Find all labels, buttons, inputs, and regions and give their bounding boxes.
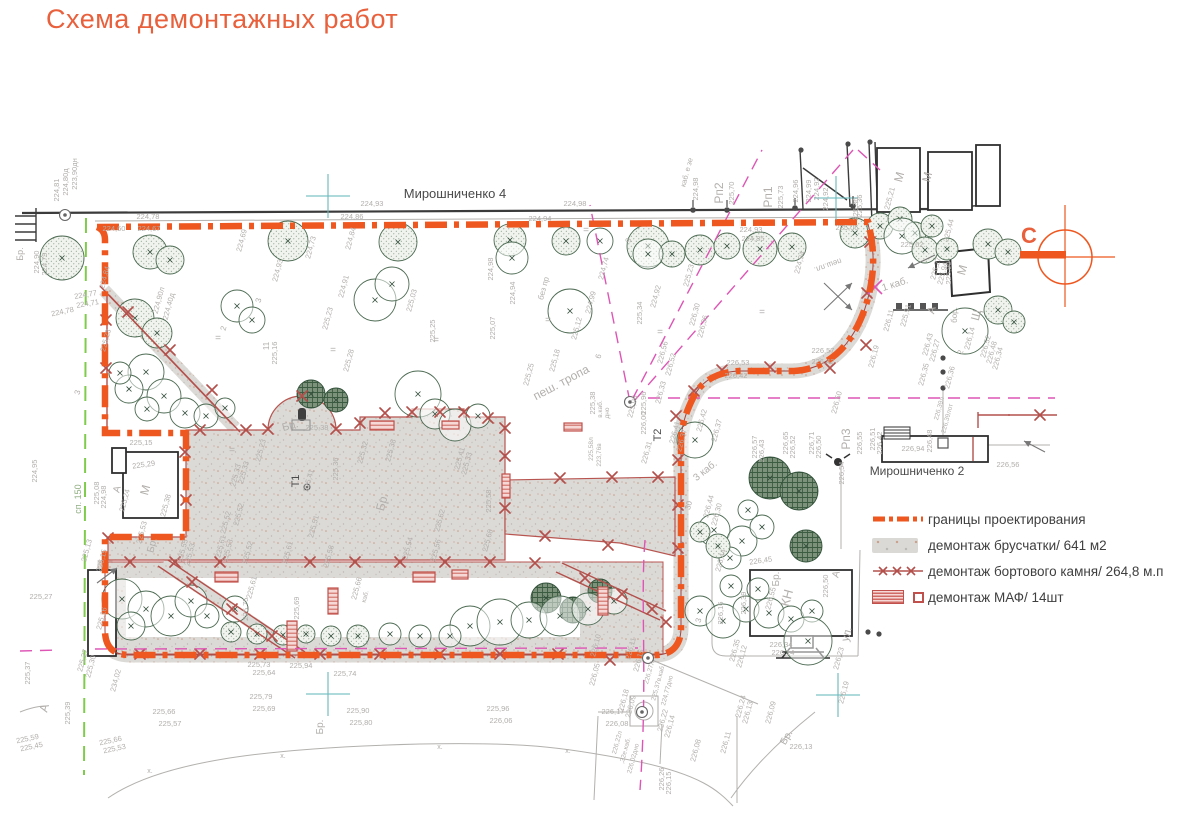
plan-label: 225,23 [681,263,696,288]
plan-label: 226,35 [916,362,931,387]
plan-label: 225,37 [23,662,32,685]
plan-label: 3 [73,389,83,396]
plan-label: 224,98 [99,486,108,509]
plan-label: 224,79 [40,253,49,276]
plan-label: = [330,345,336,356]
plan-label: х. [565,748,571,755]
plan-label: Бр. [315,720,326,735]
plan-label: 224,92 [648,284,663,309]
plan-label: Т1 [290,475,302,488]
plan-label: 225,69 [253,704,276,713]
plan-label: 225,62. [900,240,925,249]
legend-label-pavers: демонтаж брусчатки/ 641 м2 [928,538,1107,553]
plan-label: 225,90 [347,706,370,715]
plan-label: 226,56 [997,460,1020,469]
plan-label: 225,70 [727,182,736,205]
plan-label: = [215,333,221,344]
plan-label: 226,43 [757,440,766,463]
plan-label: 226,15 [664,772,673,795]
plan-label: 226,33 [653,380,668,405]
plan-label: дно [604,407,611,418]
plan-label: х. [280,753,286,760]
plan-label: 225,16 [270,342,279,365]
plan-label: 224,99 [583,290,598,315]
legend-item-maf: демонтаж МАФ/ 14шт [872,584,1198,610]
plan-label: 226,50 [814,436,823,459]
plan-label: 226,50 [829,390,844,415]
plan-label: пеш.пл. [813,256,843,274]
curb-line-legend-icon [872,564,928,578]
plan-label: 226,42 [725,371,748,380]
plan-label: х. [437,744,443,751]
plan-label: 225,96 [487,704,510,713]
plan-label: 225,96 [639,392,648,415]
plan-label: 224,93 [361,199,384,208]
plan-label: 225,73 [776,186,785,209]
plan-label: Бр. [771,572,782,587]
plan-label: 226,57 [812,346,835,355]
plan-label: 226,11 [718,730,732,754]
plan-label: 225,79 [250,692,273,701]
plan-label: 225,15 [130,438,153,447]
plan-label: 225,74 [334,669,357,678]
plan-label: 225,75 [241,598,250,621]
plan-label: 226,23 [831,646,846,671]
plan-label: 3 каб. [691,458,720,484]
plan-label: 226,36 [942,365,957,390]
plan-label: 226,52 [788,436,797,459]
plan-label: 224,98 [486,258,495,281]
plan-label: 6 [594,353,604,360]
plan-label: 226,53 [727,358,750,367]
plan-label: в.каб. [596,400,604,418]
pavers-area-legend-icon [872,538,928,553]
plan-label: 224,84 [343,226,358,251]
plan-label: = [545,315,551,326]
plan-label: 225,13 [79,538,94,563]
plan-label: 224,91 [336,274,351,299]
plan-label: 224,80д [61,168,70,196]
plan-label: 226,31 [639,440,654,465]
plan-label: 225,36 [331,458,340,481]
plan-label: 225,28 [341,348,356,373]
plan-label: 225,38 [306,423,329,432]
plan-label: 226,42 [875,432,884,455]
plan-label: 225,23 [98,328,113,353]
plan-label: 224,84 [97,265,112,290]
plan-label: 224,98 [564,199,587,208]
plan-label: 224,81 [52,179,61,202]
plan-label: 224,98 [691,178,700,201]
plan-label: 225,18 [547,348,562,373]
plan-label: Рп3 [839,428,853,450]
plan-label: 226,45 [749,554,773,566]
plan-label: 224,69 [234,228,249,253]
legend-label-curb: демонтаж бортового камня/ 264,8 м.п [928,564,1164,579]
site-plan-drawing: Мирошниченко 4Мирошниченко 2С224,93224,8… [0,0,1200,830]
legend-item-boundary: границы проектирования [872,506,1198,532]
plan-label: 225,23 [320,306,335,331]
plan-label: 226,37 [709,418,724,443]
plan-label: 224,78 [137,212,160,221]
plan-label: Мирошниченко 4 [404,186,507,201]
plan-label: = [229,445,235,456]
plan-label: Бр. [15,247,25,260]
legend-label-maf: демонтаж МАФ/ 14шт [928,590,1064,605]
plan-label: 225,38 [588,392,597,415]
plan-label: Т2 [652,429,664,442]
plan-label: 226,16 [716,602,725,625]
plan-label: 2 [219,325,229,332]
plan-label: А [36,702,52,713]
plan-label: 225,44 [941,218,956,243]
plan-label: 30 [683,499,694,510]
plan-label: 226,08 [606,719,629,728]
plan-label: 226,48 [925,430,934,453]
plan-label: 226,54 [837,462,846,485]
plan-label: 226,06 [490,716,513,725]
plan-label: 224,78 [50,305,74,319]
plan-label: 224,94 [529,214,552,223]
plan-label: 225,57 [159,719,182,728]
plan-label: 226,14 [772,648,795,657]
plan-label: = [583,225,589,236]
plan-label: 226,13 [790,742,813,751]
legend-item-curb: демонтаж бортового камня/ 264,8 м.п [872,558,1198,584]
plan-label: 224,60 [103,224,126,233]
plan-label: 225,58л [588,437,595,461]
legend-label-boundary: границы проектирования [928,512,1086,527]
plan-label: = [657,327,663,338]
plan-label: 224,94 [508,282,517,305]
plan-label: 224,86 [341,212,364,221]
plan-label: 225,06 [836,223,859,232]
plan-label: 226,09 [763,700,778,725]
plan-label: 225,07 [488,317,497,340]
plan-label: 224,74 [596,256,611,281]
plan-label: 225,94 [290,661,313,670]
plan-label: 226,42 [812,357,835,366]
legend: границы проектирования демонтаж брусчатк… [872,506,1198,610]
plan-label: 11 [262,341,271,350]
plan-label: 225,34 [635,302,644,325]
plan-label: 226,11 [881,308,895,332]
plan-label: 225,27 [30,592,53,601]
plan-label: 224,67 [138,224,161,233]
plan-label: = [759,307,765,318]
plan-label: 224,93 [270,258,285,283]
plan-label: пеш. тропа [531,362,592,403]
plan-label: Рп2 [712,182,726,204]
plan-label: 226,08 [688,738,703,763]
plan-label: 226,50 [821,575,830,598]
plan-label: 225,66 [153,707,176,716]
plan-label: 225,36 [851,198,860,221]
plan-label: ул. [839,626,854,643]
plan-label: 224,85 [742,234,765,243]
plan-label: сп. 150 [73,484,83,513]
plan-label: х. [147,768,153,775]
plan-label: 225,58 [484,490,493,513]
plan-label: без пр [536,275,551,301]
plan-label: 224,96 [791,180,800,203]
plan-label: 226,05 [587,662,602,687]
plan-label: 1 каб. [880,274,909,294]
legend-item-pavers: демонтаж брусчатки/ 641 м2 [872,532,1198,558]
boundary-line-legend-icon [872,514,928,524]
plan-label: 224,92 [812,178,821,201]
plan-label: 226,55 [855,432,864,455]
plan-label: 225,39 [63,702,72,725]
plan-label: 225,25 [521,362,536,387]
plan-label: = [433,335,439,346]
plan-label: С [1021,223,1037,248]
plan-label: 226,27л [643,660,656,685]
plan-label: 225,64 [253,668,276,677]
plan-label: бор. [950,307,959,323]
plan-label: Щ [968,308,984,322]
plan-label: 224,93 [740,225,763,234]
plan-label: 226,39 [739,592,748,615]
plan-label: 226,00 [639,412,648,435]
plan-label: 225,69 [292,597,301,620]
plan-label: Рп1 [761,186,775,208]
maf-legend-icon [872,590,928,604]
plan-label: 224,95 [30,460,39,483]
plan-label: 223,76в [596,443,603,467]
plan-label: 225,80 [350,718,373,727]
plan-label: 3 [254,297,264,304]
north-arrow-icon [1020,205,1115,307]
demolition-plan-page: Схема демонтажных работ [0,0,1200,830]
plan-label: 234,02 [108,668,123,693]
plan-label: 223,90дн [70,158,79,189]
plan-label: 226,94 [902,444,925,453]
plan-label: 224,92 [821,188,830,211]
plan-label: Мирошниченко 2 [870,464,965,478]
